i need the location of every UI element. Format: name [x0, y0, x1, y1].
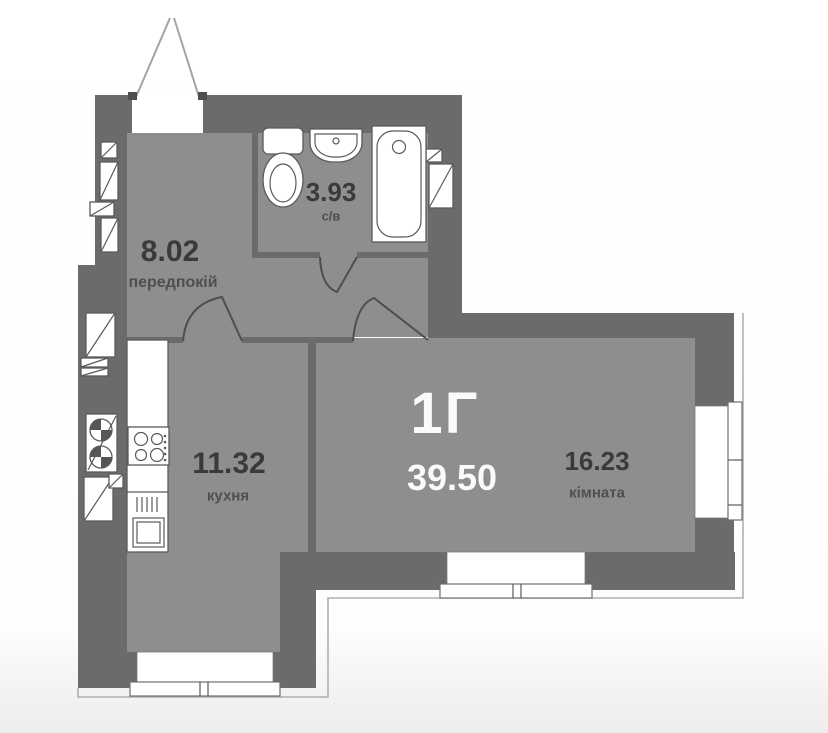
unit-label: 1Г — [410, 385, 479, 443]
bathtub-icon — [372, 126, 426, 242]
wall — [462, 313, 734, 338]
ventilation-fan-icon — [86, 414, 117, 472]
wall — [95, 95, 132, 133]
bathroom-area-label: 3.93 — [306, 179, 357, 205]
kitchen-counter — [127, 340, 169, 552]
hallway-name-label: передпокій — [128, 275, 217, 291]
kitchen-area-label: 11.32 — [192, 449, 265, 479]
stove-icon — [128, 427, 169, 465]
door-hinge — [128, 92, 137, 100]
room-living — [316, 338, 695, 552]
living-name-label: кімната — [569, 486, 625, 501]
door-swing-line — [136, 18, 170, 97]
wall-partition — [308, 337, 316, 552]
wall — [428, 95, 462, 338]
entrance-door-icon — [128, 18, 207, 133]
wall-partition — [252, 252, 320, 258]
hallway-area-label: 8.02 — [141, 237, 199, 267]
living-area-label: 16.23 — [564, 448, 629, 474]
bathroom-name-label: с/в — [322, 210, 341, 223]
kitchen-name-label: кухня — [207, 489, 249, 504]
floor-plan: 8.02 передпокій 3.93 с/в 11.32 кухня 1Г … — [0, 0, 828, 733]
door-hinge — [198, 92, 207, 100]
total-area-label: 39.50 — [407, 460, 497, 496]
door-swing-line — [174, 18, 199, 97]
entrance-opening — [132, 95, 203, 133]
window-bottom — [440, 552, 592, 598]
wall-partition — [252, 133, 258, 258]
window-right — [695, 402, 742, 520]
window-kitchen — [130, 652, 280, 696]
wall-partition — [242, 337, 353, 343]
sink-icon — [310, 129, 362, 162]
floor-plan-svg — [0, 0, 828, 733]
toilet-icon — [263, 128, 303, 207]
wall-partition — [357, 252, 428, 258]
